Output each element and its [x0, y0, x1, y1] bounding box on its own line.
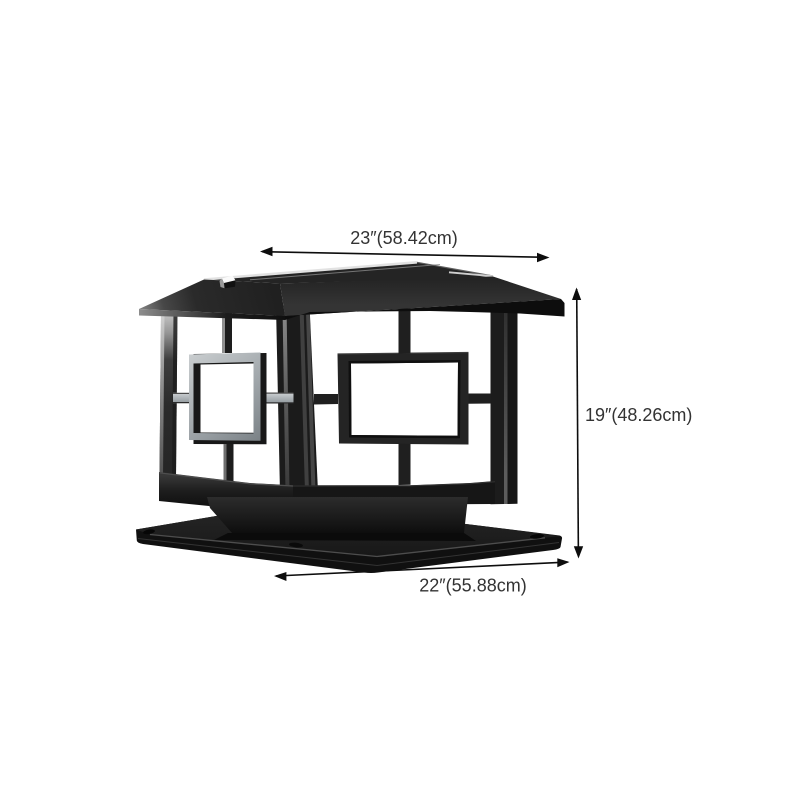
svg-text:19″(48.26cm): 19″(48.26cm)	[585, 405, 692, 425]
svg-text:22″(55.88cm): 22″(55.88cm)	[419, 576, 526, 596]
svg-text:23″(58.42cm): 23″(58.42cm)	[350, 228, 457, 248]
